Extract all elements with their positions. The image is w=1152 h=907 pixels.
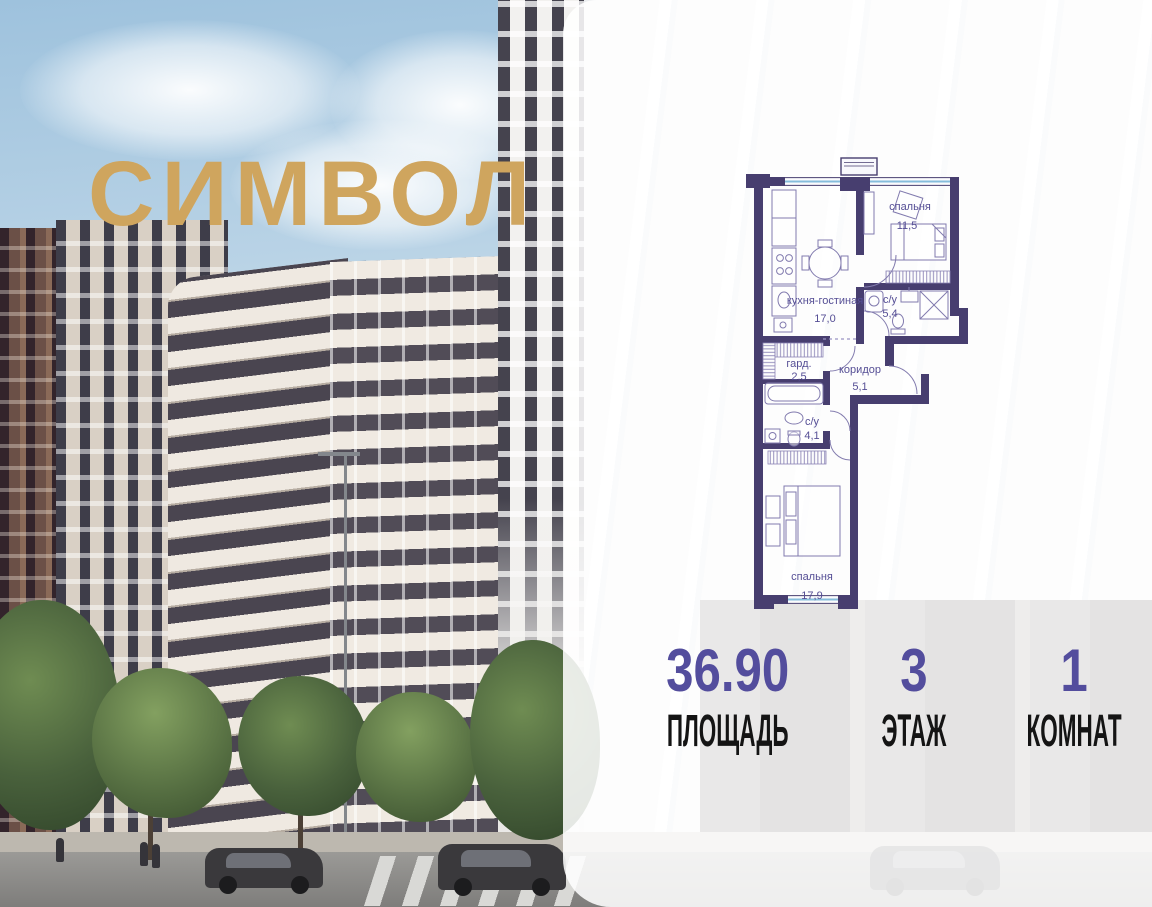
room-area-bathroom-bottom: 4,1 [804, 430, 819, 442]
room-area-bedroom-top: 11,5 [897, 220, 918, 232]
pedestrian [140, 842, 148, 866]
kitchen-furniture [772, 190, 848, 332]
listing-card: СИМВОЛ [0, 0, 1152, 907]
washing-machine [765, 429, 780, 443]
stat-rooms-label: КОМНАТ [1027, 713, 1122, 750]
ac-unit-icon [841, 158, 877, 175]
room-label-kitchen-living: кухня-гостиная [787, 295, 863, 307]
pedestrian [56, 838, 64, 862]
room-area-corridor: 5,1 [852, 381, 867, 393]
bedroom-bottom-furniture [766, 451, 840, 556]
cabinet [864, 192, 874, 234]
room-label-bedroom-bottom: спальня [791, 571, 833, 583]
dining-table [809, 247, 841, 279]
room-area-bedroom-bottom: 17,9 [801, 590, 822, 602]
bathroom-top-fixtures [865, 287, 948, 334]
stat-rooms: 1 КОМНАТ [979, 641, 1152, 750]
stat-floor-label: ЭТАЖ [882, 713, 947, 750]
car [205, 848, 323, 888]
closet-hatch [886, 271, 950, 283]
room-label-wardrobe: гард. [786, 358, 811, 370]
stat-floor: 3 ЭТАЖ [849, 641, 979, 750]
room-area-kitchen-living: 17,0 [814, 313, 835, 325]
room-area-wardrobe: 2,5 [791, 371, 806, 383]
closet-hatch [768, 451, 826, 464]
stat-area-label: ПЛОЩАДЬ [667, 713, 789, 750]
room-label-bathroom-top: с/у [883, 294, 898, 306]
washing-machine [865, 291, 883, 312]
stat-rooms-value: 1 [996, 641, 1152, 701]
stat-area-value: 36.90 [628, 641, 828, 701]
logo-simvol: СИМВОЛ [88, 148, 537, 240]
stat-area: 36.90 ПЛОЩАДЬ [606, 641, 849, 750]
sink [901, 291, 918, 302]
car [438, 844, 566, 890]
room-label-corridor: коридор [839, 364, 881, 376]
streetlamp-arm [318, 452, 360, 456]
stats-row: 36.90 ПЛОЩАДЬ 3 ЭТАЖ 1 КОМНАТ [606, 641, 1108, 750]
entry-door-arc [889, 366, 917, 394]
pedestrian [152, 844, 160, 868]
room-area-bathroom-top: 5,4 [882, 308, 897, 320]
room-label-bedroom-top: спальня [889, 201, 931, 213]
room-label-bathroom-bottom: с/у [805, 416, 820, 428]
stat-floor-value: 3 [861, 641, 967, 701]
floor-plan: спальня 11,5 кухня-гостиная 17,0 с/у 5,4… [738, 150, 970, 622]
sink [785, 412, 803, 424]
